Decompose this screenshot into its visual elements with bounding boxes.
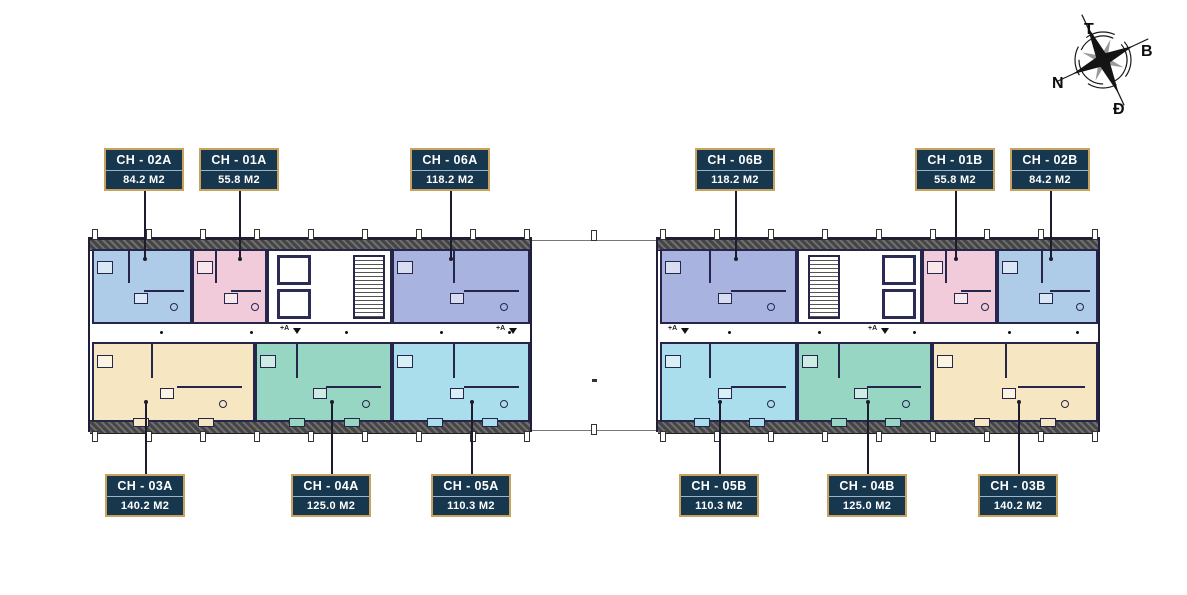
interior-wall: [838, 344, 840, 378]
chair-glyph: [767, 303, 775, 311]
balcony-tab: [1040, 418, 1056, 427]
interior-wall: [731, 386, 786, 388]
void-center-mark: [592, 379, 597, 382]
column-tick: [984, 431, 990, 442]
leader-dot: [866, 400, 870, 404]
balcony-tab: [885, 418, 901, 427]
bed-glyph: [665, 261, 681, 274]
corridor-mark: [818, 331, 821, 334]
interior-wall: [326, 386, 381, 388]
column-tick: [254, 229, 260, 240]
table-glyph: [1002, 388, 1016, 399]
interior-wall: [709, 344, 711, 378]
bed-glyph: [397, 261, 413, 274]
column-tick: [876, 229, 882, 240]
bed-glyph: [1002, 261, 1018, 274]
balcony-tab: [344, 418, 360, 427]
unit-name: CH - 01B: [917, 150, 993, 171]
leader-line: [145, 402, 147, 474]
balcony-tab: [694, 418, 710, 427]
callout-ch03b[interactable]: CH - 03B140.2 M2: [978, 474, 1058, 517]
interior-wall: [1050, 290, 1090, 292]
balcony-tab: [427, 418, 443, 427]
interior-wall: [945, 251, 947, 283]
corridor-mark: [1076, 331, 1079, 334]
column-tick: [200, 229, 206, 240]
interior-wall: [1018, 386, 1084, 388]
leader-dot: [1017, 400, 1021, 404]
balcony-tab: [974, 418, 990, 427]
column-tick: [200, 431, 206, 442]
wing-left: +A+A: [88, 237, 532, 432]
interior-wall: [215, 251, 217, 283]
column-tick: [591, 424, 597, 435]
column-tick: [254, 431, 260, 442]
callout-ch02b[interactable]: CH - 02B84.2 M2: [1010, 148, 1090, 191]
corridor-mark: [250, 331, 253, 334]
staircase: [808, 255, 840, 319]
leader-line: [867, 402, 869, 474]
table-glyph: [450, 293, 464, 304]
chair-glyph: [219, 400, 227, 408]
column-tick: [146, 431, 152, 442]
unit-area: 118.2 M2: [412, 171, 488, 189]
balcony-tab: [198, 418, 214, 427]
column-tick: [768, 431, 774, 442]
chair-glyph: [362, 400, 370, 408]
interior-wall: [709, 251, 711, 283]
chair-glyph: [981, 303, 989, 311]
service-core: [267, 249, 392, 324]
column-tick: [1092, 229, 1098, 240]
leader-dot: [718, 400, 722, 404]
leader-line: [144, 191, 146, 259]
leader-line: [471, 402, 473, 474]
unit-name: CH - 03A: [107, 476, 183, 497]
table-glyph: [224, 293, 238, 304]
table-glyph: [160, 388, 174, 399]
interior-wall: [453, 251, 455, 283]
interior-wall: [151, 344, 153, 378]
unit-area: 125.0 M2: [293, 497, 369, 515]
column-tick: [1092, 431, 1098, 442]
unit-area: 125.0 M2: [829, 497, 905, 515]
table-glyph: [718, 293, 732, 304]
column-tick: [591, 230, 597, 241]
chair-glyph: [1076, 303, 1084, 311]
central-void: [532, 240, 656, 431]
column-tick: [362, 229, 368, 240]
table-glyph: [313, 388, 327, 399]
section-marker: +A: [668, 325, 677, 332]
corridor-mark: [160, 331, 163, 334]
unit-area: 110.3 M2: [433, 497, 509, 515]
compass-label-south: N: [1052, 75, 1064, 92]
leader-dot: [449, 257, 453, 261]
bed-glyph: [260, 355, 276, 368]
elevator-shaft: [882, 255, 916, 285]
column-tick: [768, 229, 774, 240]
section-marker: +A: [868, 325, 877, 332]
unit-name: CH - 05B: [681, 476, 757, 497]
bed-glyph: [937, 355, 953, 368]
unit-ch03a[interactable]: [92, 342, 255, 422]
bed-glyph: [397, 355, 413, 368]
column-tick: [362, 431, 368, 442]
interior-wall: [1041, 251, 1043, 283]
unit-name: CH - 06A: [412, 150, 488, 171]
leader-line: [239, 191, 241, 259]
unit-area: 55.8 M2: [201, 171, 277, 189]
wing-right: +A+A: [656, 237, 1100, 432]
compass-rose: T B N Đ: [1042, 6, 1160, 124]
section-marker: +A: [496, 325, 505, 332]
bed-glyph: [197, 261, 213, 274]
interior-wall: [464, 386, 519, 388]
section-marker-triangle: [681, 328, 689, 334]
column-tick: [930, 229, 936, 240]
column-tick: [416, 229, 422, 240]
unit-name: CH - 06B: [697, 150, 773, 171]
bed-glyph: [665, 355, 681, 368]
elevator-shaft: [882, 289, 916, 319]
chair-glyph: [500, 303, 508, 311]
interior-wall: [296, 344, 298, 378]
chair-glyph: [170, 303, 178, 311]
interior-wall: [177, 386, 242, 388]
column-tick: [984, 229, 990, 240]
table-glyph: [854, 388, 868, 399]
elevator-shaft: [277, 289, 311, 319]
leader-line: [450, 191, 452, 259]
table-glyph: [954, 293, 968, 304]
leader-dot: [330, 400, 334, 404]
callout-ch05a[interactable]: CH - 05A110.3 M2: [431, 474, 511, 517]
balcony-tab: [289, 418, 305, 427]
interior-wall: [867, 386, 921, 388]
corridor-mark: [728, 331, 731, 334]
section-marker-triangle: [509, 328, 517, 334]
unit-name: CH - 02B: [1012, 150, 1088, 171]
chair-glyph: [251, 303, 259, 311]
column-tick: [1038, 431, 1044, 442]
compass-label-north: B: [1141, 43, 1153, 60]
bed-glyph: [97, 261, 113, 274]
corridor-mark: [913, 331, 916, 334]
callout-ch06b[interactable]: CH - 06B118.2 M2: [695, 148, 775, 191]
column-tick: [1038, 229, 1044, 240]
unit-name: CH - 02A: [106, 150, 182, 171]
section-marker: +A: [280, 325, 289, 332]
leader-line: [331, 402, 333, 474]
leader-dot: [143, 257, 147, 261]
compass-label-west: T: [1084, 21, 1094, 38]
table-glyph: [134, 293, 148, 304]
bed-glyph: [97, 355, 113, 368]
column-tick: [876, 431, 882, 442]
column-tick: [660, 431, 666, 442]
unit-name: CH - 01A: [201, 150, 277, 171]
corridor-mark: [345, 331, 348, 334]
unit-name: CH - 04A: [293, 476, 369, 497]
bed-glyph: [802, 355, 818, 368]
callout-ch02a[interactable]: CH - 02A84.2 M2: [104, 148, 184, 191]
unit-area: 84.2 M2: [106, 171, 182, 189]
column-tick: [308, 431, 314, 442]
interior-wall: [453, 344, 455, 378]
compass-label-east: Đ: [1113, 101, 1125, 118]
unit-area: 140.2 M2: [107, 497, 183, 515]
column-tick: [930, 431, 936, 442]
leader-dot: [238, 257, 242, 261]
leader-dot: [144, 400, 148, 404]
callout-ch03a[interactable]: CH - 03A140.2 M2: [105, 474, 185, 517]
column-tick: [308, 229, 314, 240]
chair-glyph: [902, 400, 910, 408]
table-glyph: [718, 388, 732, 399]
chair-glyph: [767, 400, 775, 408]
unit-area: 84.2 M2: [1012, 171, 1088, 189]
unit-name: CH - 03B: [980, 476, 1056, 497]
leader-line: [1050, 191, 1052, 259]
column-tick: [660, 229, 666, 240]
callout-ch01a[interactable]: CH - 01A55.8 M2: [199, 148, 279, 191]
chair-glyph: [500, 400, 508, 408]
table-glyph: [1039, 293, 1053, 304]
bed-glyph: [927, 261, 943, 274]
service-core: [797, 249, 922, 324]
floor-plan-canvas: T B N Đ +A+A +A+A CH - 02A84.2 M2CH - 01…: [0, 0, 1187, 595]
unit-name: CH - 04B: [829, 476, 905, 497]
unit-area: 118.2 M2: [697, 171, 773, 189]
interior-wall: [1005, 344, 1007, 378]
callout-ch04a[interactable]: CH - 04A125.0 M2: [291, 474, 371, 517]
column-tick: [822, 229, 828, 240]
interior-wall: [128, 251, 130, 283]
leader-line: [735, 191, 737, 259]
callout-ch01b[interactable]: CH - 01B55.8 M2: [915, 148, 995, 191]
balcony-tab: [482, 418, 498, 427]
column-tick: [146, 229, 152, 240]
interior-wall: [464, 290, 519, 292]
interior-wall: [731, 290, 786, 292]
column-tick: [416, 431, 422, 442]
leader-line: [719, 402, 721, 474]
elevator-shaft: [277, 255, 311, 285]
staircase: [353, 255, 385, 319]
corridor-mark: [440, 331, 443, 334]
column-tick: [524, 229, 530, 240]
column-tick: [92, 431, 98, 442]
section-marker-triangle: [293, 328, 301, 334]
section-marker-triangle: [881, 328, 889, 334]
leader-line: [955, 191, 957, 259]
callout-ch05b[interactable]: CH - 05B110.3 M2: [679, 474, 759, 517]
leader-dot: [954, 257, 958, 261]
unit-area: 110.3 M2: [681, 497, 757, 515]
callout-ch04b[interactable]: CH - 04B125.0 M2: [827, 474, 907, 517]
unit-area: 140.2 M2: [980, 497, 1056, 515]
leader-dot: [1049, 257, 1053, 261]
unit-name: CH - 05A: [433, 476, 509, 497]
column-tick: [714, 229, 720, 240]
leader-line: [1018, 402, 1020, 474]
callout-ch06a[interactable]: CH - 06A118.2 M2: [410, 148, 490, 191]
interior-wall: [144, 290, 184, 292]
balcony-tab: [831, 418, 847, 427]
column-tick: [470, 229, 476, 240]
leader-dot: [470, 400, 474, 404]
balcony-tab: [749, 418, 765, 427]
corridor-mark: [1008, 331, 1011, 334]
column-tick: [92, 229, 98, 240]
column-tick: [822, 431, 828, 442]
unit-ch03b[interactable]: [932, 342, 1098, 422]
table-glyph: [450, 388, 464, 399]
leader-dot: [734, 257, 738, 261]
column-tick: [524, 431, 530, 442]
unit-area: 55.8 M2: [917, 171, 993, 189]
